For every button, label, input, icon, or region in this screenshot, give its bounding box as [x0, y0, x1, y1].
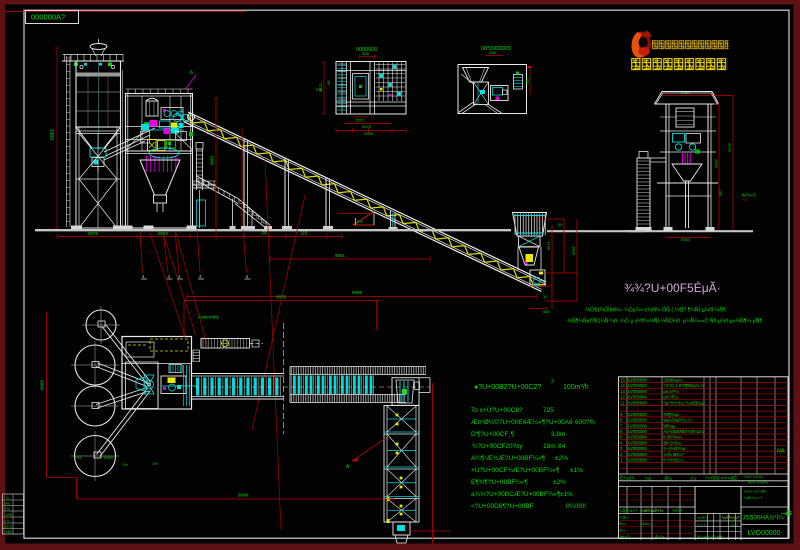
svg-text:× × ×: × × ×	[697, 523, 706, 527]
svg-text:Æ¼: Æ¼	[664, 476, 672, 481]
svg-text:JS500HÁ½¹Ì¼: JS500HÁ½¹Ì¼	[743, 513, 785, 522]
svg-text:LV000000: LV000000	[628, 383, 647, 388]
svg-text:0061: 0061	[50, 129, 56, 140]
svg-text:9aÃÄ0a0?¼·¼: 9aÃÄ0a0?¼·¼	[664, 418, 692, 423]
svg-text:Åú¼: Åú¼	[642, 521, 651, 526]
svg-text:1%: 1%	[122, 462, 128, 467]
svg-text:10.1: 10.1	[4, 523, 13, 528]
svg-text:·½Ñ¶¼Ñ±Ì?Ñ1¼Ñ ¼ñ ·¼Ó·µ ±¼¶²»¼Ñ: ·½Ñ¶¼Ñ±Ì?Ñ1¼Ñ ¼ñ ·¼Ó·µ ±¼¶²»¼ÑÌ·¼ÑÒ¼ñ ·µ…	[566, 318, 762, 325]
svg-text:6: 6	[190, 70, 193, 76]
svg-text:|++0+BC¼: |++0+BC¼	[664, 458, 685, 463]
svg-text:LV000000: LV000000	[628, 429, 647, 434]
svg-text:¼§¼: ¼§¼	[620, 515, 630, 520]
svg-text:¼«¶?: ¼«¶?	[697, 515, 708, 520]
svg-text:YJC: YJC	[742, 198, 749, 202]
svg-text:11: 11	[620, 400, 625, 405]
svg-text:¼«× ¼!×¼: ¼«× ¼!×¼	[744, 474, 764, 479]
svg-text:057: 057	[718, 189, 723, 196]
svg-text:μ0?Æ¼·: μ0?Æ¼·	[664, 395, 680, 400]
svg-text:100m³/h: 100m³/h	[563, 384, 589, 391]
svg-text:14: 14	[620, 383, 625, 388]
svg-text:000000A?: 000000A?	[31, 13, 65, 22]
svg-text:051: 051	[543, 309, 550, 314]
svg-text:600?/h: 600?/h	[575, 419, 595, 426]
svg-text:·¼Ó¶1¼ÓÌMê¼:·¼Óµ¼«·±¼ñÌ¼·ÔÑ (·: ·¼Ó¶1¼ÓÌMê¼:·¼Óµ¼«·±¼ñÌ¼·ÔÑ (·¼¶Í? ¶¼ÑÌ·…	[584, 307, 726, 314]
svg-text:¾?U+00CF20?xy: ¾?U+00CF20?xy	[472, 443, 524, 450]
svg-text:9998: 9998	[238, 493, 249, 498]
svg-text:LV000000: LV000000	[628, 395, 647, 400]
svg-text:0%1: 0%1	[74, 455, 83, 460]
svg-text:To x+Ü?U+00C6?: To x+Ü?U+00C6?	[471, 406, 523, 414]
svg-text:0521: 0521	[546, 240, 551, 250]
svg-text:LV000000: LV000000	[628, 423, 647, 428]
svg-text:12: 12	[620, 395, 625, 400]
svg-text:3964: 3964	[364, 131, 374, 136]
svg-text:10: 10	[543, 294, 548, 299]
svg-text:|++0+B?¼µ: |++0+B?¼µ	[664, 446, 686, 451]
svg-text:LV000000: LV000000	[628, 446, 647, 451]
svg-text:Â0Ä0Ð0ÂÈ0+00¼µ¼: Â0Ä0Ð0ÂÈ0+00¼µ¼	[664, 429, 705, 434]
svg-text:±2%: ±2%	[555, 455, 568, 462]
svg-text:0042: 0042	[714, 158, 719, 168]
svg-text:°¼: °¼	[4, 495, 10, 500]
svg-text:D'¶?U+00CF¸¶: D'¶?U+00CF¸¶	[471, 431, 515, 438]
svg-text:051: 051	[525, 77, 530, 84]
svg-text:¼¶1: ¼¶1	[4, 529, 12, 534]
svg-text:Ð¼: Ð¼	[4, 500, 11, 505]
svg-text:ps=0?¼: ps=0?¼	[664, 389, 680, 394]
svg-text:1570: 1570	[355, 118, 365, 123]
svg-text:0¼!00!: 0¼!00!	[566, 503, 586, 510]
svg-text:A¼¶¹Æ¾Æ?U+00BF¼«¶: A¼¶¹Æ¾Æ?U+00BF¼«¶	[471, 455, 546, 462]
svg-text:+U?U+00CF¾Æ?U+00BF¼«¶: +U?U+00CF¾Æ?U+00BF¼«¶	[471, 467, 560, 474]
svg-text:W?a=5: W?a=5	[742, 193, 757, 198]
svg-text:±2%: ±2%	[553, 479, 566, 486]
svg-text:×0¼?: ×0¼?	[672, 508, 683, 513]
svg-text:05: 05	[558, 222, 563, 227]
svg-text:0576: 0576	[727, 142, 732, 152]
svg-text:Ê?¼ÅÁ: Ê?¼ÅÁ	[620, 476, 635, 481]
svg-text:Æ¼ ×¼Á¼: Æ¼ ×¼Á¼	[748, 480, 769, 485]
svg-text:725: 725	[543, 407, 554, 414]
svg-text:Æ¤°Ø¼©?U+00E4Æ¼«¶?U+00A6: Æ¤°Ø¼©?U+00E4Æ¼«¶?U+00A6	[471, 418, 573, 426]
svg-text:1%: 1%	[357, 219, 363, 224]
svg-text:LV000000: LV000000	[628, 435, 647, 440]
svg-text:18m X4: 18m X4	[543, 443, 566, 450]
svg-text:+0?Ò¸0 9?5¶0Dµ¼·¼: +0?Ò¸0 9?5¶0Dµ¼·¼	[664, 383, 705, 388]
svg-text:E¶¾¶?U+00BF¼«¶: E¶¾¶?U+00BF¼«¶	[471, 479, 528, 486]
svg-text:00*0000000: 00*0000000	[481, 46, 511, 52]
svg-text:9998: 9998	[352, 290, 363, 295]
svg-text:05: 05	[262, 231, 268, 236]
svg-text:¼Á: ¼Á	[645, 476, 652, 481]
svg-text:#0¶0¼µ: #0¶0¼µ	[664, 412, 680, 417]
svg-text:LV000000: LV000000	[628, 440, 647, 445]
svg-text:¾¾?U+00F5ÉμÃ·: ¾¾?U+00F5ÉμÃ·	[624, 280, 721, 295]
svg-text:BK 0+0¼: BK 0+0¼	[664, 440, 682, 445]
svg-text:¼§?×±×?: ¼§?×±×?	[620, 508, 638, 513]
svg-text:Åú?×: Åú?×	[655, 534, 665, 539]
svg-text:1%: 1%	[152, 461, 158, 466]
svg-text:±1%: ±1%	[560, 491, 573, 498]
svg-text:0675: 0675	[362, 124, 372, 129]
svg-text:3.8m: 3.8m	[551, 431, 565, 438]
svg-text:LVO00000: LVO00000	[748, 530, 781, 537]
svg-text:0081: 0081	[210, 154, 215, 165]
svg-text:LV000000: LV000000	[628, 389, 647, 394]
svg-text:JS06¼µ¼: JS06¼µ¼	[664, 378, 683, 383]
svg-text:118: 118	[300, 231, 308, 236]
svg-text:●?U+00B2?U+00C2?: ●?U+00B2?U+00C2?	[474, 384, 541, 391]
svg-text:¼ÁÅ«¼?: ¼ÁÅ«¼?	[722, 515, 740, 520]
svg-text:¹¤¼Ò: ¹¤¼Ò	[620, 534, 630, 539]
svg-text:É¼: É¼	[620, 528, 627, 533]
svg-text:0063: 0063	[681, 237, 691, 242]
svg-text:a¾¾?U+00BCÆ?U+00BF¼«¶: a¾¾?U+00BCÆ?U+00BF¼«¶	[471, 491, 561, 498]
svg-text:NA: NA	[777, 449, 785, 455]
svg-text:15: 15	[620, 378, 625, 383]
svg-text:»æÍ¼±ê×¼: »æÍ¼±ê×¼	[641, 508, 664, 513]
svg-text:09: 09	[326, 80, 331, 85]
svg-text:b 9b?#a¼: b 9b?#a¼	[664, 435, 683, 440]
svg-text:¼?b 0B¼?·: ¼?b 0B¼?·	[664, 452, 686, 457]
svg-text:¼«¼ ¼! ¼¶×: ¼«¼ ¼! ¼¶×	[744, 489, 768, 494]
svg-text:Assembly: Assembly	[198, 315, 219, 321]
svg-text:0522: 0522	[318, 82, 323, 92]
svg-text:<?U+00D6¶?U+00BF: <?U+00D6¶?U+00BF	[471, 503, 534, 510]
svg-text:9001: 9001	[335, 253, 346, 258]
svg-text:0575: 0575	[88, 231, 99, 236]
svg-text:3: 3	[551, 379, 554, 385]
svg-text:?+×ÏÕ0-×ÌY×ÆÊ: ?+×ÏÕ0-×ÌY×ÆÊ	[705, 476, 737, 481]
svg-text:1×0: 1×0	[731, 523, 737, 527]
svg-text:LV000000: LV000000	[628, 400, 647, 405]
svg-text:LV000000: LV000000	[628, 412, 647, 417]
svg-text:±1%: ±1%	[570, 467, 583, 474]
svg-text:bÐ¼µ: bÐ¼µ	[664, 423, 676, 428]
svg-text:0063: 0063	[681, 90, 691, 95]
svg-text:LV000000: LV000000	[628, 458, 647, 463]
svg-text:0575: 0575	[276, 295, 287, 300]
svg-text:LV000000: LV000000	[628, 452, 647, 457]
svg-text:¼Æ×¼ ×?: ¼Æ×¼ ×?	[744, 495, 763, 500]
svg-text:É¼: É¼	[4, 506, 11, 511]
svg-text:0092: 0092	[571, 245, 576, 255]
svg-text:13: 13	[620, 389, 625, 394]
svg-text:Ð¼: Ð¼	[620, 521, 627, 526]
svg-text:008: 008	[362, 51, 369, 56]
svg-text:008: 008	[489, 50, 496, 55]
svg-text:0¼ 4¼ ¼? NA: 0¼ 4¼ ¼? NA	[697, 534, 723, 539]
svg-text:1¼: 1¼	[690, 476, 696, 481]
svg-text:¼×¶: ¼×¶	[4, 512, 12, 517]
svg-text:3μ?0++3¼ ?¼0DB¼µ: 3μ?0++3¼ ?¼0DB¼µ	[664, 400, 706, 405]
svg-text:0088: 0088	[40, 379, 45, 390]
svg-text:LV000000: LV000000	[628, 378, 647, 383]
svg-text:LV000000: LV000000	[628, 418, 647, 423]
svg-text:×¼: ×¼	[4, 518, 10, 523]
svg-text:1%00: 1%00	[103, 455, 114, 460]
